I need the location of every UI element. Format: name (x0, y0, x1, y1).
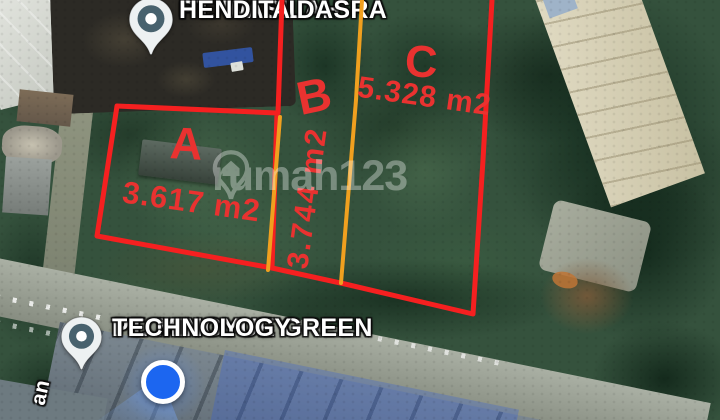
divider-b-right-line (341, 0, 362, 283)
parcel-top-boundary-line (278, 0, 282, 113)
satellite-map[interactable]: PT. WASILAH HENDITA DASRA PT. MINGYUE GR… (0, 0, 720, 420)
watermark-text: rumah123 (212, 155, 407, 198)
plot-a-label: A (169, 117, 204, 171)
plot-boundaries-overlay (0, 0, 720, 420)
